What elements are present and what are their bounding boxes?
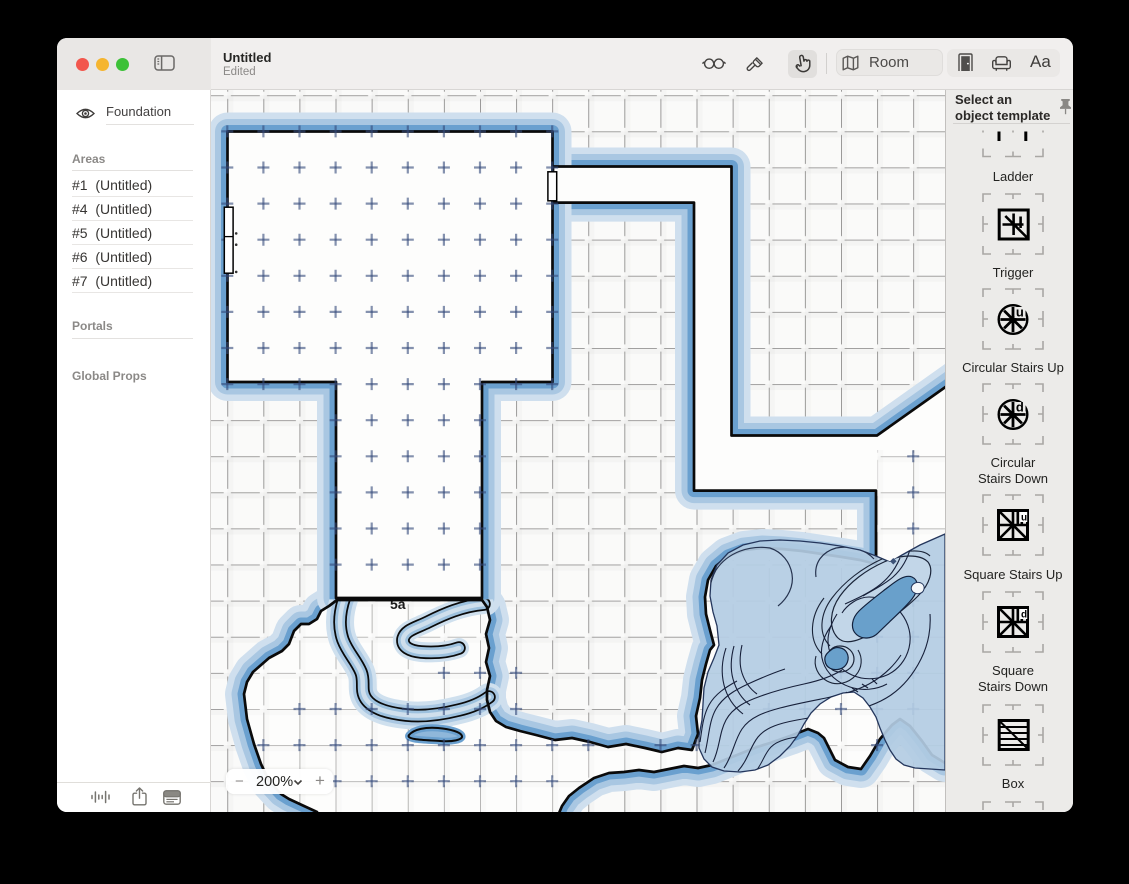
svg-text:Stairs Down: Stairs Down (978, 679, 1048, 694)
svg-text:Square: Square (992, 663, 1034, 678)
svg-text:Ladder: Ladder (993, 169, 1034, 184)
svg-text:d: d (1016, 400, 1024, 415)
svg-text:Trigger: Trigger (993, 265, 1034, 280)
svg-text:Circular Stairs Up: Circular Stairs Up (962, 360, 1064, 375)
svg-text:u: u (1021, 513, 1027, 524)
svg-text:u: u (1016, 305, 1024, 320)
svg-text:Box: Box (1002, 776, 1025, 791)
svg-text:Circular: Circular (991, 455, 1036, 470)
svg-text:Square Stairs Up: Square Stairs Up (964, 567, 1063, 582)
svg-text:d: d (1021, 610, 1027, 621)
svg-text:Stairs Down: Stairs Down (978, 471, 1048, 486)
